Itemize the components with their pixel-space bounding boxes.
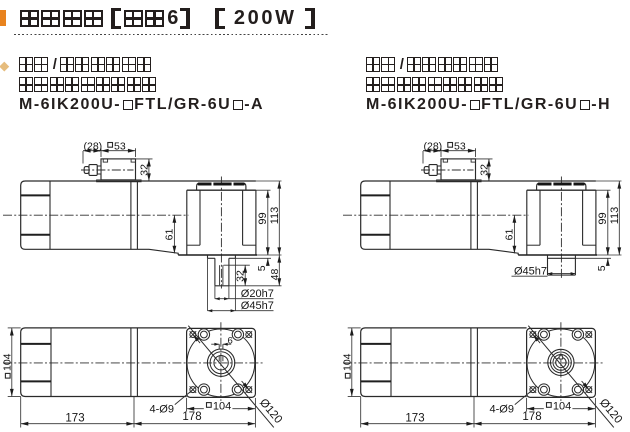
svg-text:32: 32 — [234, 270, 246, 282]
svg-text:48: 48 — [269, 269, 281, 281]
svg-text:Ø45h7: Ø45h7 — [241, 300, 274, 312]
svg-text:6: 6 — [228, 335, 233, 346]
svg-text:Ø20h7: Ø20h7 — [241, 288, 274, 300]
svg-text:Ø45h7: Ø45h7 — [514, 265, 547, 277]
